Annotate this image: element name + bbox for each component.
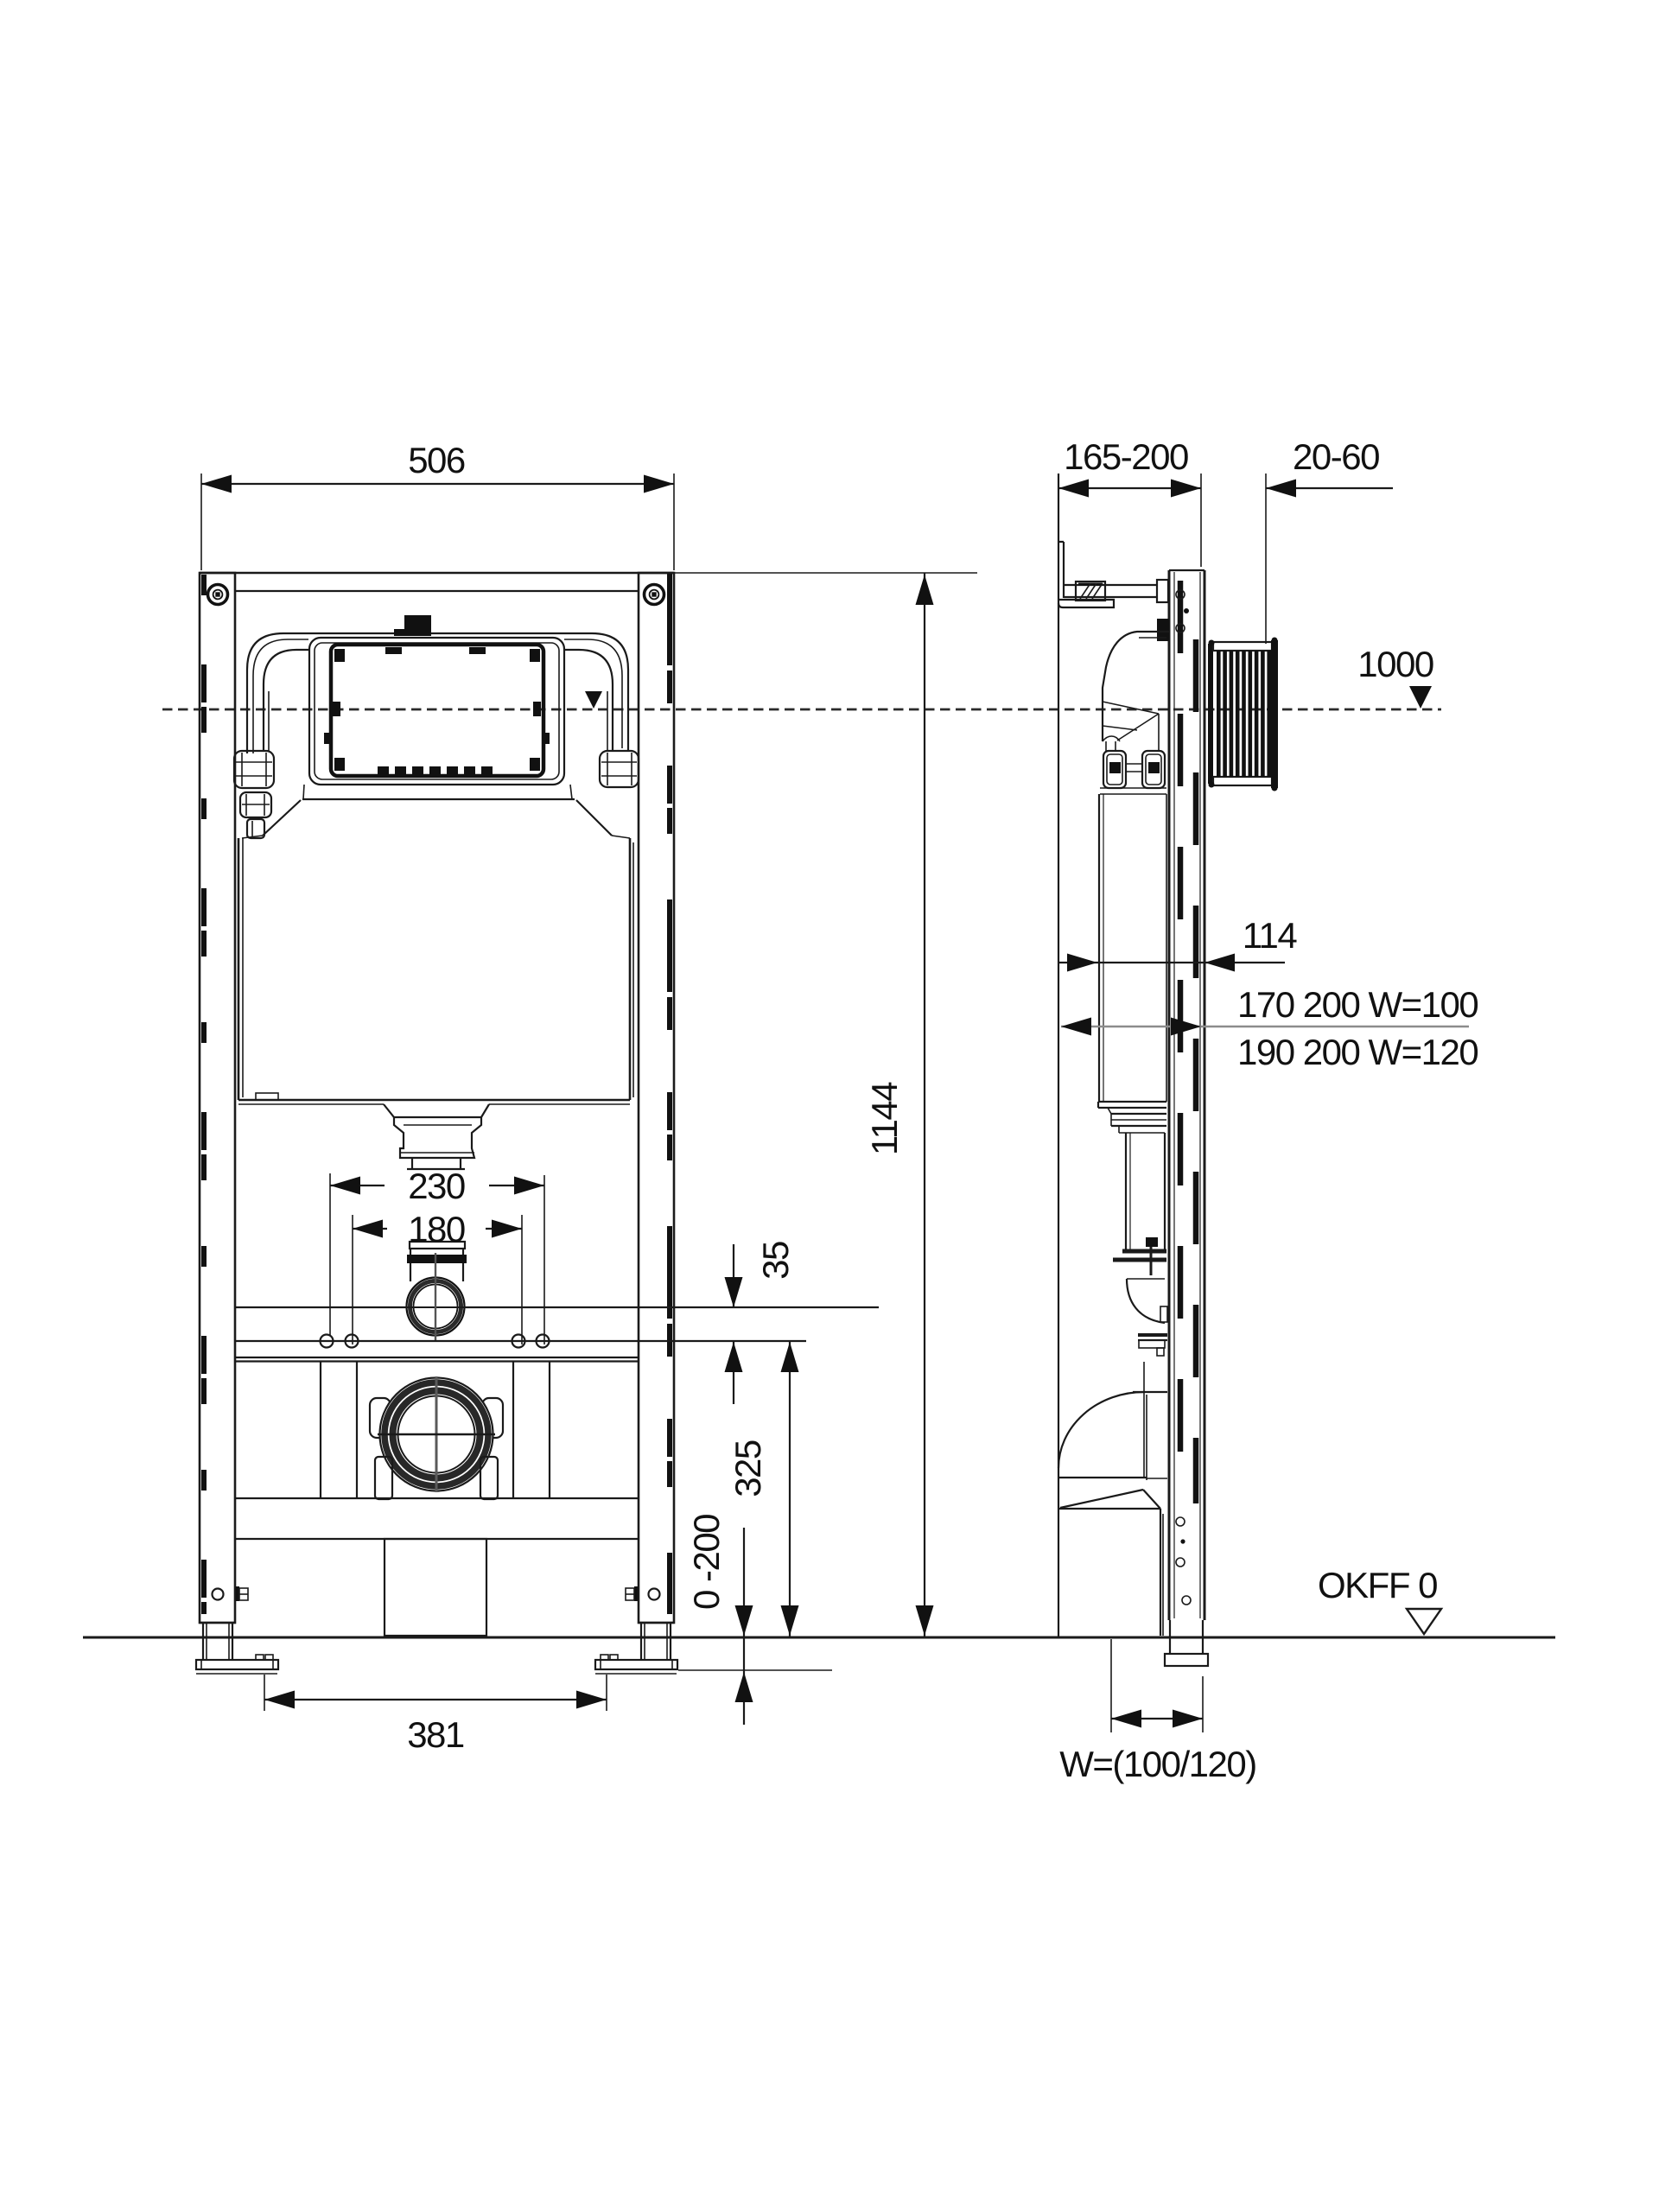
svg-text:20-60: 20-60 [1293, 436, 1379, 477]
svg-text:1144: 1144 [864, 1082, 905, 1155]
svg-text:165-200: 165-200 [1064, 436, 1188, 477]
svg-text:OKFF 0: OKFF 0 [1318, 1565, 1437, 1605]
svg-text:180: 180 [408, 1209, 465, 1249]
svg-text:381: 381 [407, 1714, 464, 1755]
svg-text:W=(100/120): W=(100/120) [1059, 1744, 1255, 1784]
svg-text:230: 230 [408, 1166, 465, 1206]
svg-text:506: 506 [408, 440, 465, 480]
svg-text:1000: 1000 [1357, 644, 1433, 684]
svg-text:114: 114 [1243, 915, 1298, 956]
svg-text:170 200 W=100: 170 200 W=100 [1237, 984, 1478, 1025]
svg-text:35: 35 [755, 1242, 796, 1280]
svg-text:190 200 W=120: 190 200 W=120 [1237, 1032, 1478, 1072]
svg-text:325: 325 [728, 1440, 768, 1497]
svg-text:0 -200: 0 -200 [686, 1515, 727, 1610]
